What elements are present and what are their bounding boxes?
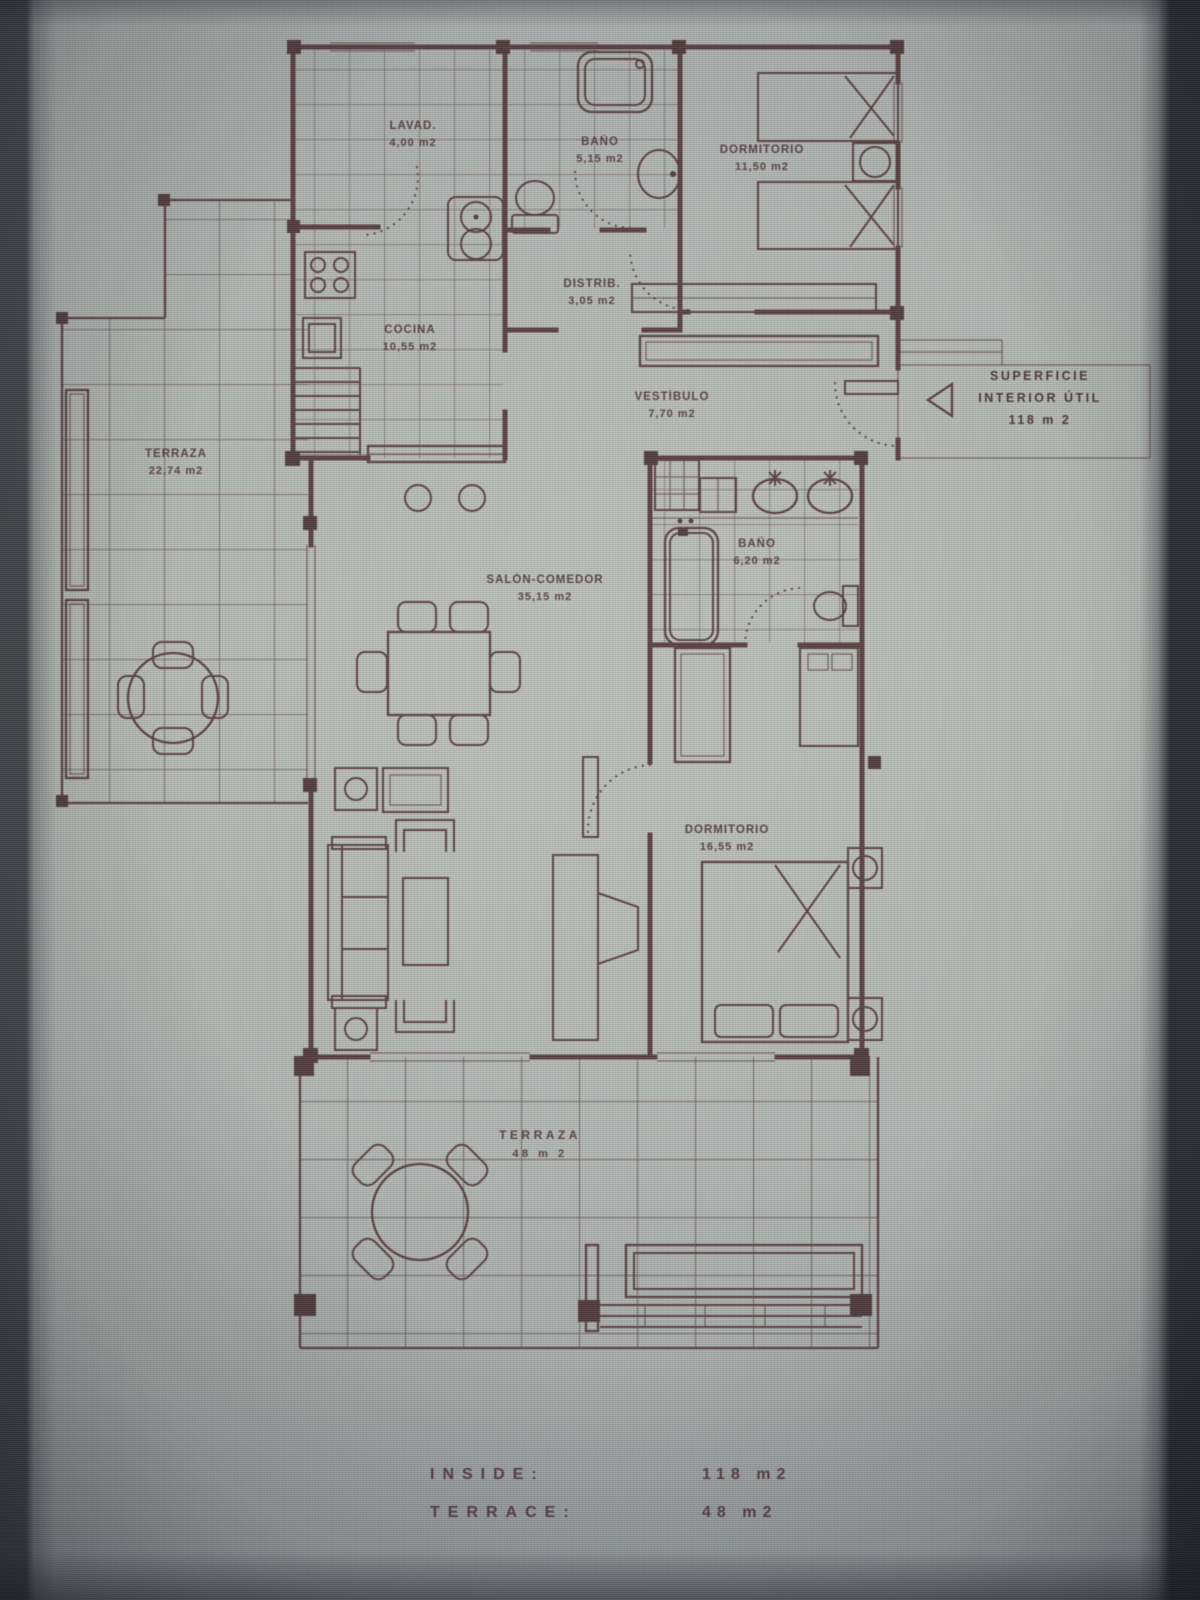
floor-plan-drawing: [0, 0, 1200, 1600]
room-area: 5,15 m2: [576, 153, 623, 165]
tv-unit-icon: [553, 855, 638, 1040]
room-label-dormitorio1: DORMITORIO 11,50 m2: [720, 142, 805, 177]
nightstand-icon: [848, 848, 882, 1040]
dining-table-icon: [357, 602, 520, 745]
room-label-terraza1: TERRAZA 22,74 m2: [145, 446, 207, 481]
room-name: LAVAD.: [389, 120, 436, 132]
room-label-lavadero: LAVAD. 4,00 m2: [389, 118, 436, 153]
room-area: 22,74 m2: [149, 465, 203, 477]
room-name: DORMITORIO: [720, 144, 805, 156]
floor-plan-photo: LAVAD. 4,00 m2 BAÑO 5,15 m2 DORMITORIO 1…: [0, 0, 1200, 1600]
room-label-cocina: COCINA 10,55 m2: [383, 322, 437, 357]
coffee-table-icon: [403, 878, 448, 965]
room-label-dormitorio2: DORMITORIO 16,55 m2: [685, 822, 770, 857]
room-name: VESTÍBULO: [635, 391, 710, 403]
room-area: 35,15 m2: [518, 591, 572, 603]
room-name: DISTRIB.: [563, 278, 620, 290]
room-area: 3,05 m2: [568, 295, 615, 307]
room-area: 10,55 m2: [383, 341, 437, 353]
room-name: DORMITORIO: [685, 824, 770, 836]
annotation-line1: SUPERFICIE: [990, 369, 1090, 383]
room-name: BAÑO: [738, 538, 776, 550]
bedroom1-closet: [632, 284, 876, 312]
double-bed-icon: [702, 862, 848, 1042]
summary-row-inside: INSIDE: 118 m2: [430, 1466, 791, 1484]
room-area: 11,50 m2: [735, 161, 789, 173]
plan-layer: LAVAD. 4,00 m2 BAÑO 5,15 m2 DORMITORIO 1…: [0, 0, 1200, 1600]
room-label-salon: SALÓN-COMEDOR 35,15 m2: [486, 572, 603, 607]
room-label-distribuidor: DISTRIB. 3,05 m2: [563, 276, 620, 311]
armchair-icon: [396, 820, 454, 852]
room-name: SALÓN-COMEDOR: [486, 574, 603, 586]
summary-value: 118 m2: [702, 1466, 791, 1484]
summary-label: INSIDE:: [430, 1466, 702, 1484]
cabinet-icon: [383, 768, 448, 812]
interior-area-annotation: SUPERFICIE INTERIOR ÚTIL 118 m 2: [978, 366, 1101, 432]
room-name: COCINA: [384, 324, 435, 336]
room-area: 16,55 m2: [700, 841, 754, 853]
vestibule-sideboard: [640, 336, 878, 366]
summary-value: 48 m2: [702, 1504, 777, 1522]
summary-row-terrace: TERRACE: 48 m2: [430, 1504, 791, 1522]
room-name: BAÑO: [581, 136, 619, 148]
room-name: TERRAZA: [499, 1128, 581, 1142]
summary-label: TERRACE:: [430, 1504, 702, 1522]
area-summary: INSIDE: 118 m2 TERRACE: 48 m2: [430, 1466, 791, 1542]
terrace1-arm-tiles: [165, 200, 293, 318]
room-area: 48 m 2: [512, 1148, 567, 1160]
terrace1-tiles: [62, 318, 308, 803]
wardrobe-icon: [675, 648, 858, 762]
room-label-bano1: BAÑO 5,15 m2: [576, 134, 623, 169]
annotation-line3: 118 m 2: [1009, 413, 1072, 427]
living-room-furniture: [328, 485, 638, 1050]
room-label-bano2: BAÑO 6,20 m2: [733, 536, 780, 571]
tiled-floors: [62, 47, 878, 1348]
room-label-terraza2: TERRAZA 48 m 2: [499, 1126, 581, 1163]
room-area: 6,20 m2: [733, 555, 780, 567]
room-area: 7,70 m2: [648, 408, 695, 420]
annotation-line2: INTERIOR ÚTIL: [978, 391, 1101, 405]
sofa-icon: [328, 837, 388, 1008]
entrance-arrow-icon: [928, 384, 952, 416]
room-name: TERRAZA: [145, 448, 207, 460]
room-area: 4,00 m2: [389, 137, 436, 149]
room-label-vestibulo: VESTÍBULO 7,70 m2: [635, 389, 710, 424]
armchair-icon: [396, 1000, 454, 1032]
